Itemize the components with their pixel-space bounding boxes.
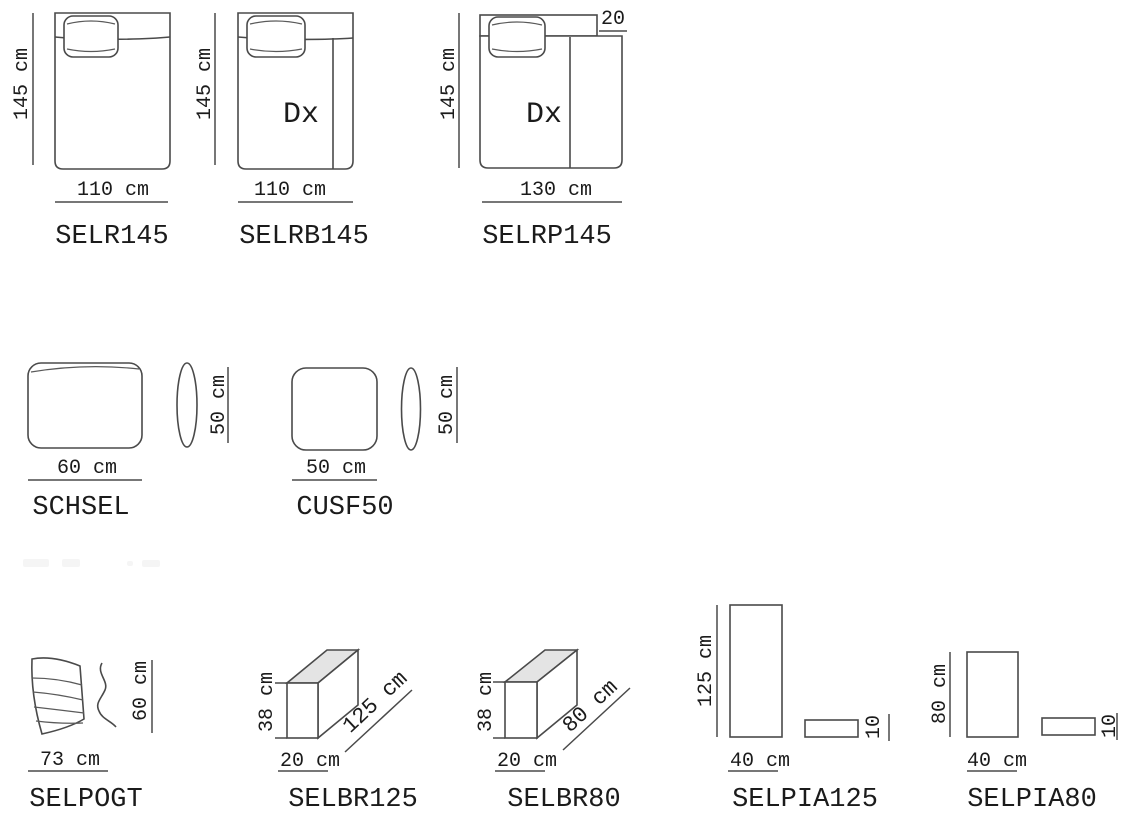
cusf50-label: CUSF50 [296, 493, 393, 523]
selbr125-front-face [287, 683, 318, 738]
schsel-width-dim: 60 cm [57, 457, 117, 480]
cusf50-width-dim: 50 cm [306, 457, 366, 480]
selpia80-label: SELPIA80 [967, 785, 1097, 815]
selpia125-height-dim: 125 cm [695, 635, 718, 707]
selrp145-width-dim: 130 cm [520, 179, 592, 202]
selpia125-side-view [805, 720, 858, 737]
cusf50-front-view [292, 368, 377, 450]
module-selpogt: 60 cm 73 cm SELPOGT [28, 658, 153, 815]
selr145-headrest-cushion [64, 16, 118, 57]
selpia125-front-view [730, 605, 782, 737]
selrb145-side-mark: Dx [283, 98, 319, 132]
selrb145-headrest-cushion [247, 16, 305, 57]
selbr125-height-dim: 38 cm [256, 672, 279, 732]
selpogt-height-dim: 60 cm [130, 661, 153, 721]
catalog-drawing-page: 145 cm 110 cm SELR145 145 cm Dx 110 cm S… [0, 0, 1124, 820]
module-schsel: 50 cm 60 cm SCHSEL [28, 363, 231, 523]
cusf50-side-view [402, 368, 421, 450]
technical-drawing-canvas: 145 cm 110 cm SELR145 145 cm Dx 110 cm S… [0, 0, 1124, 820]
cusf50-height-dim: 50 cm [436, 375, 459, 435]
module-cusf50: 50 cm 50 cm CUSF50 [292, 367, 459, 523]
selrb145-label: SELRB145 [239, 222, 369, 252]
selbr80-depth-dim: 20 cm [497, 750, 557, 773]
module-selrb145: 145 cm Dx 110 cm SELRB145 [194, 13, 369, 252]
selpia125-label: SELPIA125 [732, 785, 878, 815]
schsel-label: SCHSEL [32, 493, 129, 523]
selr145-label: SELR145 [55, 222, 168, 252]
scan-artifact [127, 561, 133, 566]
module-selbr80: 38 cm 80 cm 20 cm SELBR80 [475, 650, 630, 815]
selpia80-side-view [1042, 718, 1095, 735]
selrp145-height-dim: 145 cm [438, 48, 461, 120]
selr145-height-dim: 145 cm [11, 48, 34, 120]
selrb145-height-dim: 145 cm [194, 48, 217, 120]
selbr80-label: SELBR80 [507, 785, 620, 815]
schsel-side-view [177, 363, 197, 447]
selpia125-width-dim: 40 cm [730, 750, 790, 773]
selpogt-width-dim: 73 cm [40, 749, 100, 772]
selpogt-side-profile [98, 663, 116, 727]
scan-artifact [23, 559, 49, 567]
selrb145-width-dim: 110 cm [254, 179, 326, 202]
selbr80-height-dim: 38 cm [475, 672, 498, 732]
module-selr145: 145 cm 110 cm SELR145 [11, 13, 170, 252]
selpia125-thickness-dim: 10 [863, 715, 886, 739]
selbr125-depth-dim: 20 cm [280, 750, 340, 773]
module-selpia80: 80 cm 10 40 cm SELPIA80 [929, 652, 1122, 815]
schsel-front-view [28, 363, 142, 448]
selr145-width-dim: 110 cm [77, 179, 149, 202]
selpogt-label: SELPOGT [29, 785, 142, 815]
selrp145-label: SELRP145 [482, 222, 612, 252]
selpia80-height-dim: 80 cm [929, 664, 952, 724]
module-selpia125: 125 cm 10 40 cm SELPIA125 [695, 605, 889, 815]
scan-artifact [142, 560, 160, 567]
module-selbr125: 38 cm 125 cm 20 cm SELBR125 [256, 650, 418, 815]
selpia80-front-view [967, 652, 1018, 737]
selrp145-side-mark: Dx [526, 98, 562, 132]
module-selrp145: 145 cm Dx 20 130 cm SELRP145 [438, 8, 627, 252]
scan-artifact [62, 559, 80, 567]
selpia80-width-dim: 40 cm [967, 750, 1027, 773]
selrp145-back-offset-dim: 20 [601, 8, 625, 31]
selbr80-front-face [505, 682, 537, 738]
selbr125-label: SELBR125 [288, 785, 418, 815]
selpia80-thickness-dim: 10 [1099, 714, 1122, 738]
